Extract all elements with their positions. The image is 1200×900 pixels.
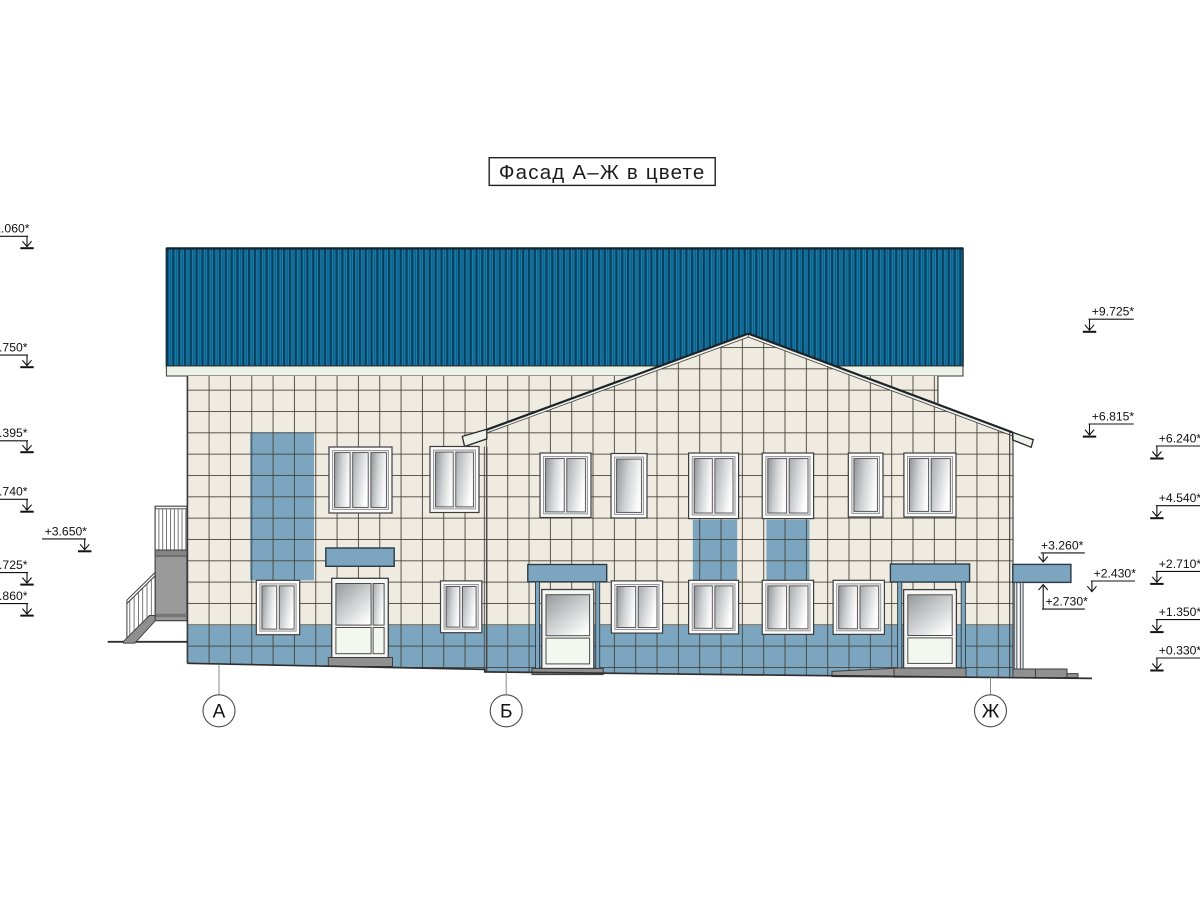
svg-text:+8.750*: +8.750* [0, 341, 28, 355]
svg-text:Б: Б [500, 701, 512, 722]
svg-text:+3.650*: +3.650* [45, 524, 88, 538]
svg-text:+6.240*: +6.240* [1159, 431, 1200, 445]
svg-text:+6.815*: +6.815* [1092, 409, 1135, 423]
svg-text:+5.395*: +5.395* [0, 426, 28, 440]
svg-text:+3.260*: +3.260* [1041, 538, 1084, 552]
svg-text:+2.730*: +2.730* [1046, 595, 1089, 609]
svg-text:+1.860*: +1.860* [0, 589, 28, 603]
svg-text:А: А [213, 701, 226, 722]
svg-text:+9.725*: +9.725* [1092, 305, 1135, 319]
svg-text:Ж: Ж [982, 701, 1000, 722]
svg-text:+4.540*: +4.540* [1159, 491, 1200, 505]
svg-text:Фасад А–Ж в цвете: Фасад А–Ж в цвете [499, 161, 706, 184]
svg-text:+4.740*: +4.740* [0, 485, 28, 499]
svg-text:+2.430*: +2.430* [1094, 566, 1137, 580]
svg-text:+2.710*: +2.710* [1159, 557, 1200, 571]
svg-text:+11.060*: +11.060* [0, 222, 30, 236]
svg-text:+1.350*: +1.350* [1159, 605, 1200, 619]
svg-text:+0.330*: +0.330* [1159, 643, 1200, 657]
svg-text:+2.725*: +2.725* [0, 558, 28, 572]
